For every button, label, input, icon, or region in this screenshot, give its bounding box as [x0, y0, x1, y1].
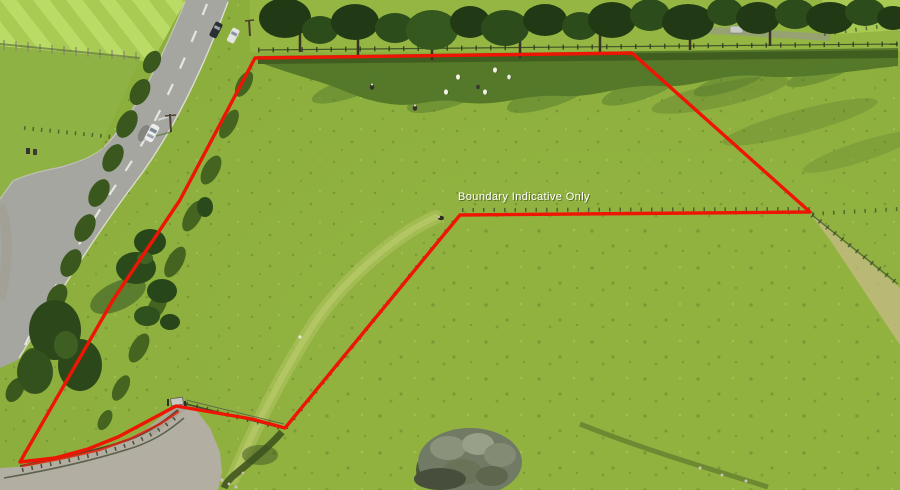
- creek-stone: [228, 483, 231, 486]
- roadside-bin: [26, 148, 30, 154]
- gate-post: [167, 399, 169, 406]
- animal-at-corner: [438, 216, 444, 220]
- aerial-photo-canvas: Boundary Indicative Only Boundary Indica…: [0, 0, 900, 490]
- creek-stone: [242, 472, 245, 475]
- ditch-stone: [721, 474, 724, 477]
- ditch-stone: [699, 467, 702, 470]
- white-marker: [298, 335, 301, 338]
- boundary-label: Boundary Indicative Only: [458, 191, 590, 203]
- creek-stone: [220, 478, 223, 481]
- small-tree: [197, 197, 213, 217]
- dark-sheep: [476, 85, 480, 89]
- roadside-bin: [33, 149, 37, 155]
- ditch-stone: [745, 480, 748, 483]
- creek-stone: [234, 485, 237, 488]
- creek-shadow: [242, 445, 278, 465]
- aerial-property-photo: Boundary Indicative Only Boundary Indica…: [0, 0, 900, 490]
